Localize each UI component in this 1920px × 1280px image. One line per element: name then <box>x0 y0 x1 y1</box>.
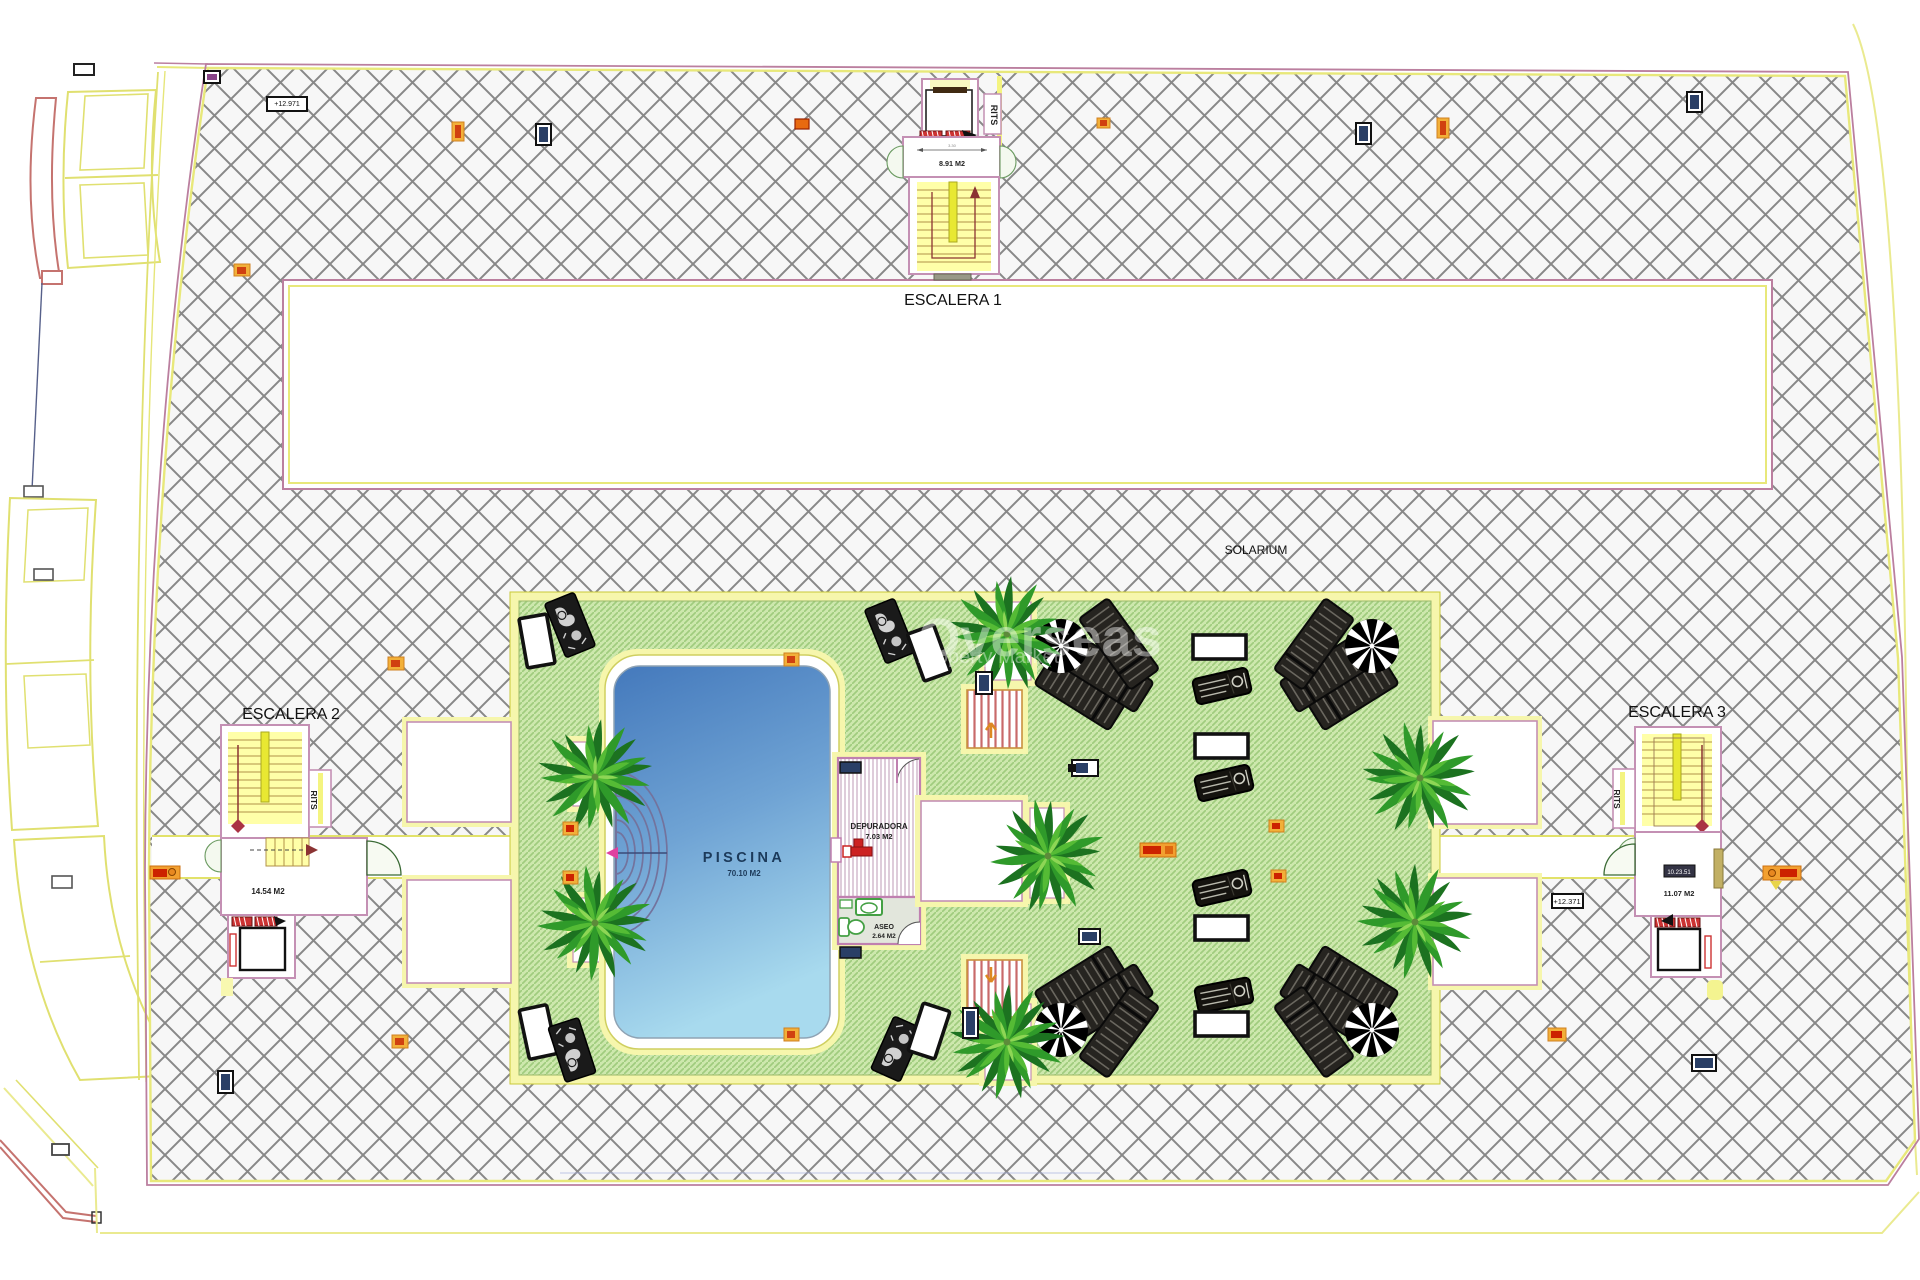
svg-text:7.03 M2: 7.03 M2 <box>865 832 892 841</box>
svg-text:+12.971: +12.971 <box>274 101 300 108</box>
svg-text:Property Market: Property Market <box>917 646 1060 668</box>
svg-text:RITS: RITS <box>309 790 319 810</box>
svg-text:DEPURADORA: DEPURADORA <box>850 822 908 831</box>
svg-text:SOLARIUM: SOLARIUM <box>1225 543 1288 557</box>
svg-text:RITS: RITS <box>1612 789 1622 809</box>
svg-text:ESCALERA 2: ESCALERA 2 <box>242 706 340 723</box>
svg-text:RITS: RITS <box>989 105 999 126</box>
svg-text:3.30: 3.30 <box>948 143 957 148</box>
svg-text:PISCINA: PISCINA <box>703 850 786 866</box>
svg-text:11.07 M2: 11.07 M2 <box>1664 889 1695 898</box>
svg-text:14.54 M2: 14.54 M2 <box>251 887 285 896</box>
svg-text:8.91 M2: 8.91 M2 <box>939 159 965 168</box>
svg-text:10.23.51: 10.23.51 <box>1667 870 1691 876</box>
svg-text:ASEO: ASEO <box>874 924 894 931</box>
svg-text:+12.371: +12.371 <box>1553 897 1580 906</box>
svg-text:ESCALERA 3: ESCALERA 3 <box>1628 704 1726 721</box>
svg-text:70.10 M2: 70.10 M2 <box>727 869 761 878</box>
svg-text:ESCALERA 1: ESCALERA 1 <box>904 292 1002 309</box>
svg-text:2.64 M2: 2.64 M2 <box>872 933 896 940</box>
